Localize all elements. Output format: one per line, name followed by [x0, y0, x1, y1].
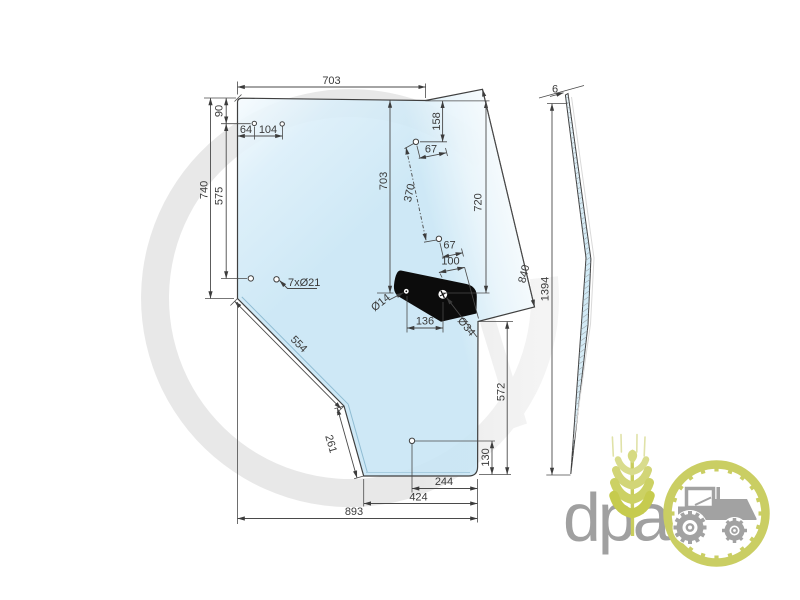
svg-text:7xØ21: 7xØ21	[288, 277, 320, 289]
svg-text:575: 575	[213, 187, 225, 205]
svg-text:104: 104	[259, 124, 277, 136]
svg-text:100: 100	[441, 256, 459, 268]
svg-text:244: 244	[435, 476, 453, 488]
svg-text:130: 130	[480, 448, 492, 466]
svg-text:703: 703	[322, 75, 340, 87]
svg-text:572: 572	[495, 383, 507, 401]
svg-text:64: 64	[240, 124, 252, 136]
svg-text:136: 136	[416, 316, 434, 328]
svg-text:720: 720	[472, 193, 484, 211]
svg-text:6: 6	[552, 84, 558, 96]
svg-text:67: 67	[443, 240, 455, 252]
svg-text:261: 261	[322, 433, 339, 454]
svg-text:740: 740	[198, 181, 210, 199]
svg-text:67: 67	[425, 143, 437, 155]
svg-text:893: 893	[345, 506, 363, 518]
svg-text:424: 424	[409, 492, 427, 504]
svg-text:703: 703	[378, 172, 390, 190]
svg-text:1394: 1394	[539, 277, 551, 301]
svg-text:90: 90	[213, 105, 225, 117]
svg-text:158: 158	[431, 112, 443, 130]
